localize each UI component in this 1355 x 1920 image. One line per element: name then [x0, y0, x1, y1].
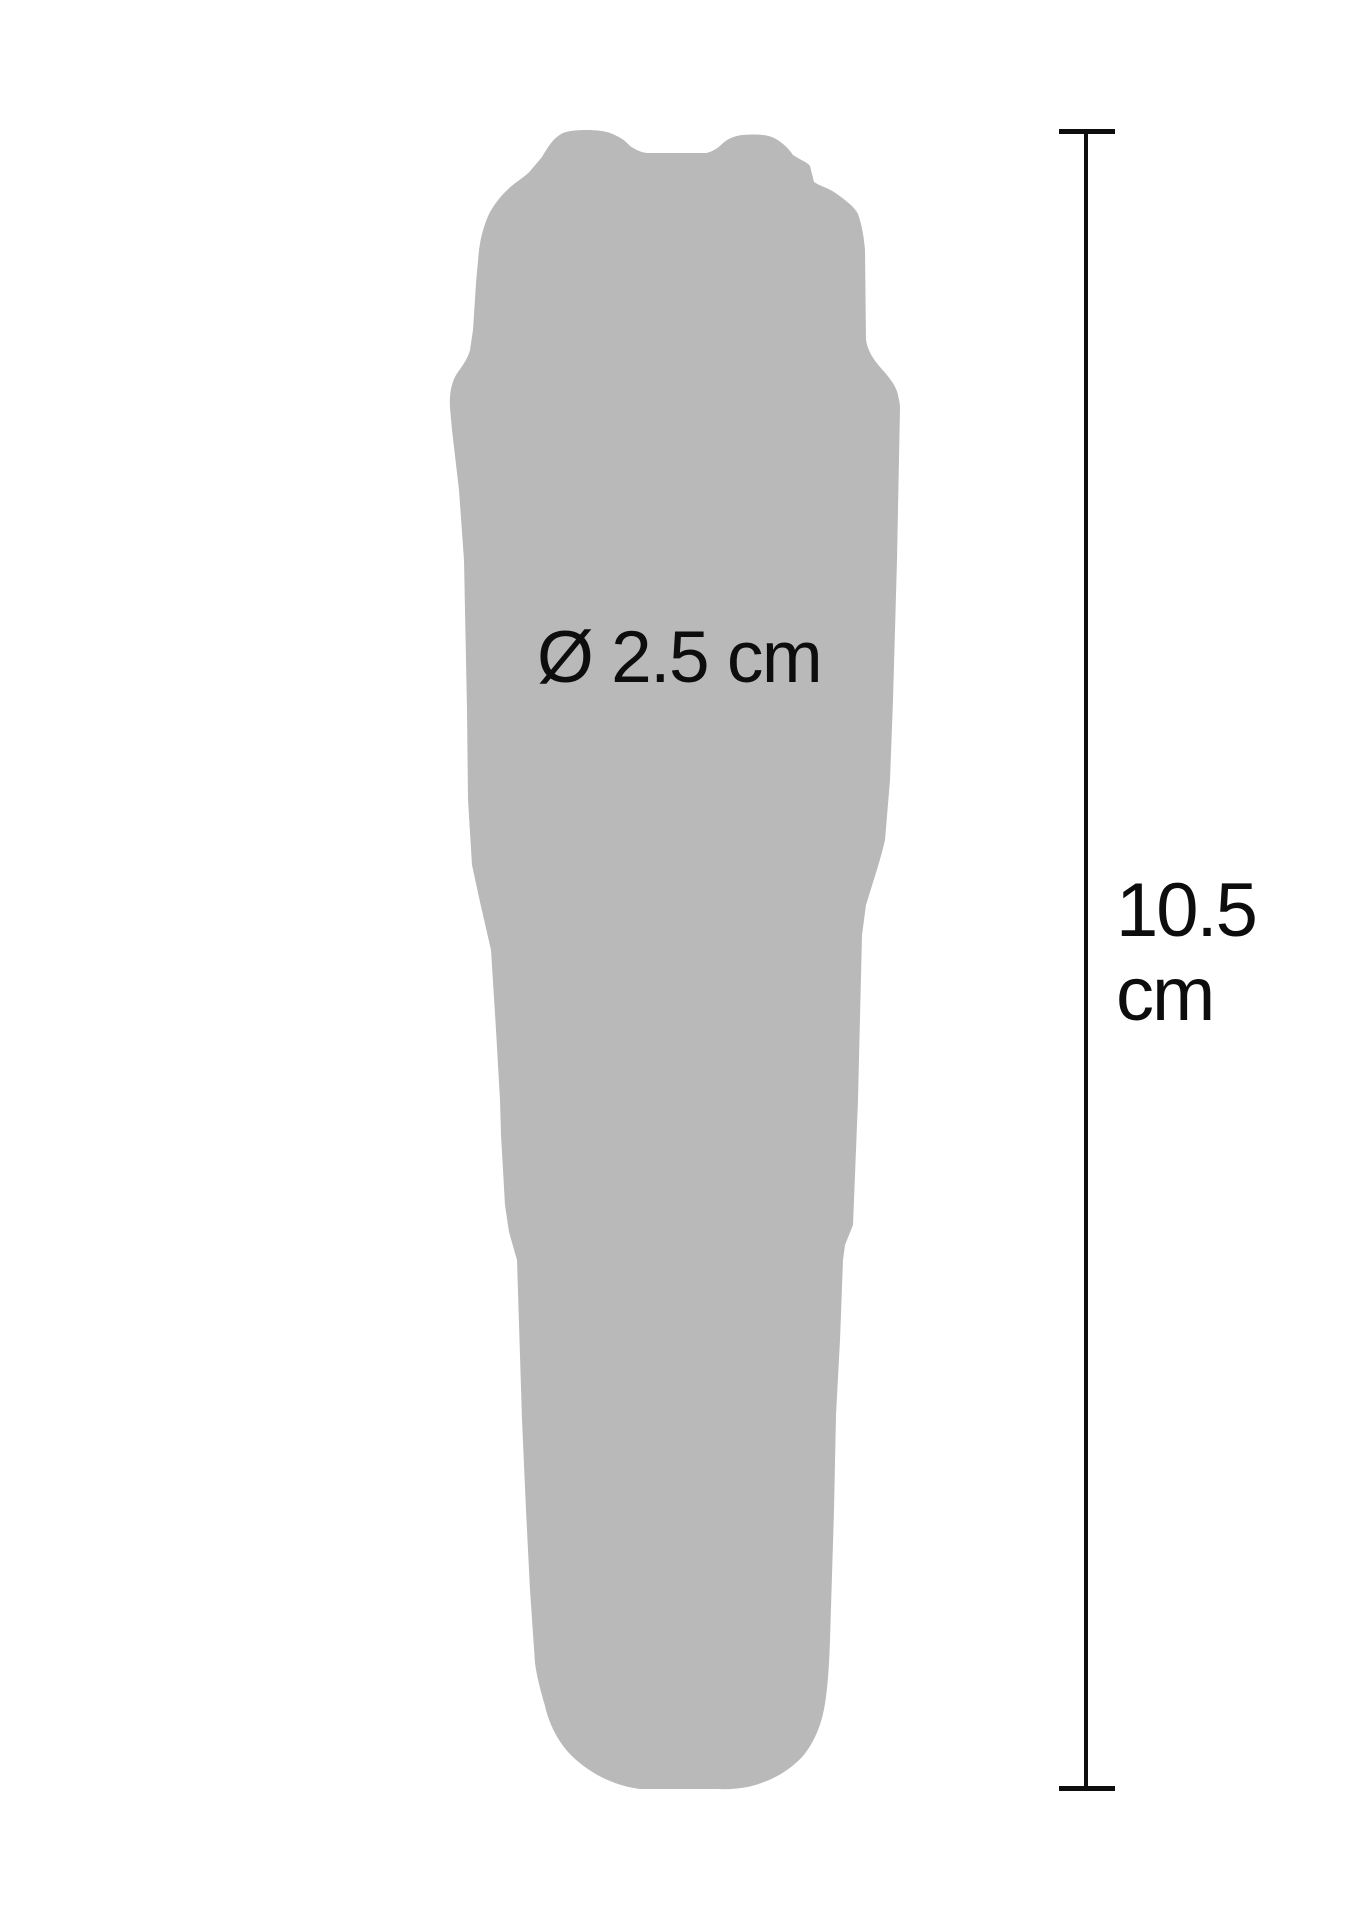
silhouette-shape — [450, 130, 900, 1789]
height-unit: cm — [1116, 953, 1256, 1037]
height-value: 10.5 — [1116, 869, 1256, 953]
dimension-vertical-line — [1084, 131, 1088, 1788]
dimension-bottom-tick — [1059, 1786, 1115, 1791]
height-label: 10.5 cm — [1116, 869, 1256, 1037]
diameter-label: Ø 2.5 cm — [537, 621, 821, 694]
product-dimension-diagram: Ø 2.5 cm 10.5 cm — [0, 0, 1355, 1920]
